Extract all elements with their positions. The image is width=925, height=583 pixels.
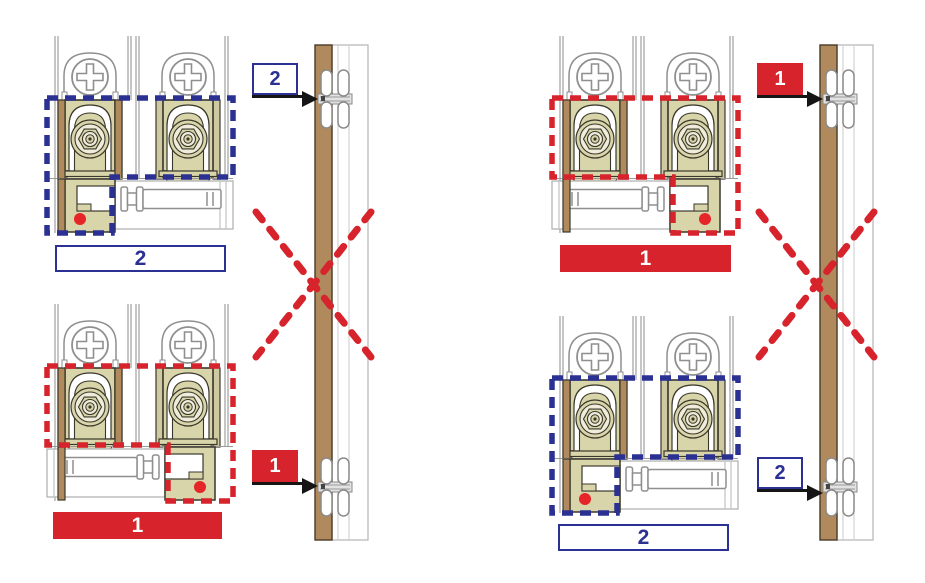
hinge-callout-right-bottom: 2: [757, 457, 803, 489]
carriage-assembly-bottom-right: [540, 310, 750, 560]
carriage-assembly-top-right: [540, 30, 750, 280]
callout-leader-line: [252, 95, 302, 98]
prohibition-cross-left: [253, 209, 375, 361]
arrow-right-icon: [807, 485, 823, 501]
arrow-right-icon: [302, 478, 318, 494]
step-label-bottom-left: 1: [53, 512, 222, 539]
carriage-assembly-top-left: [35, 30, 245, 280]
callout-leader-line: [252, 482, 302, 485]
callout-leader-line: [757, 489, 807, 492]
prohibition-cross-right: [756, 209, 878, 361]
hinge-callout-left-top: 2: [252, 63, 298, 95]
carriage-assembly-bottom-left: [35, 298, 245, 548]
arrow-right-icon: [302, 91, 318, 107]
hinge-callout-left-bottom: 1: [252, 450, 298, 482]
assembly-instruction-figure: 2 1 1 2 2 1 1 2: [0, 0, 925, 583]
step-label-bottom-right: 2: [558, 524, 729, 551]
step-label-top-left: 2: [55, 245, 226, 272]
arrow-right-icon: [807, 91, 823, 107]
step-label-top-right: 1: [560, 245, 731, 272]
callout-leader-line: [757, 95, 807, 98]
hinge-callout-right-top: 1: [757, 63, 803, 95]
